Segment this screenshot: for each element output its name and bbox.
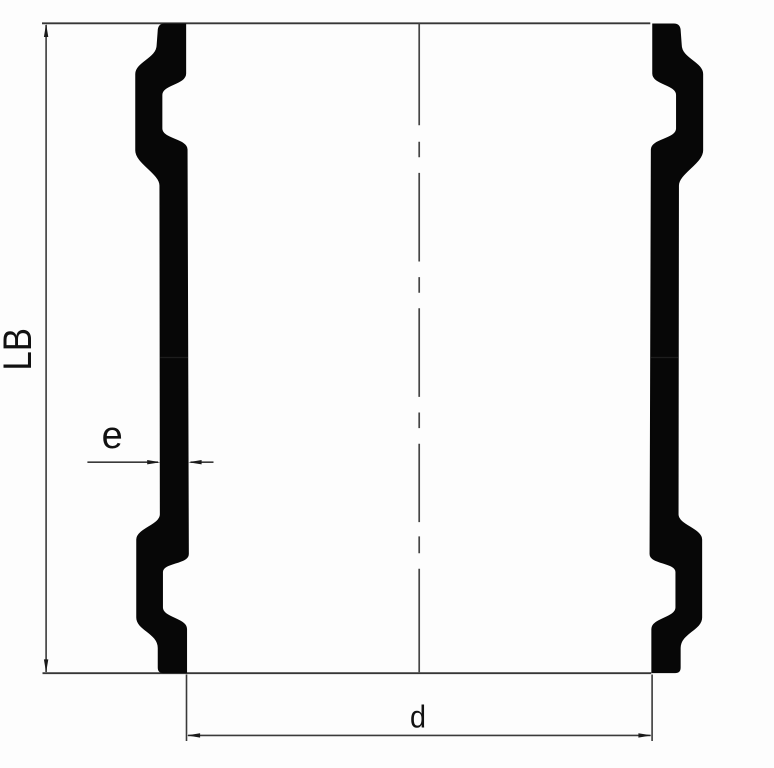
- svg-text:e: e: [102, 415, 123, 457]
- svg-text:LB: LB: [0, 328, 40, 371]
- svg-text:d: d: [410, 698, 426, 734]
